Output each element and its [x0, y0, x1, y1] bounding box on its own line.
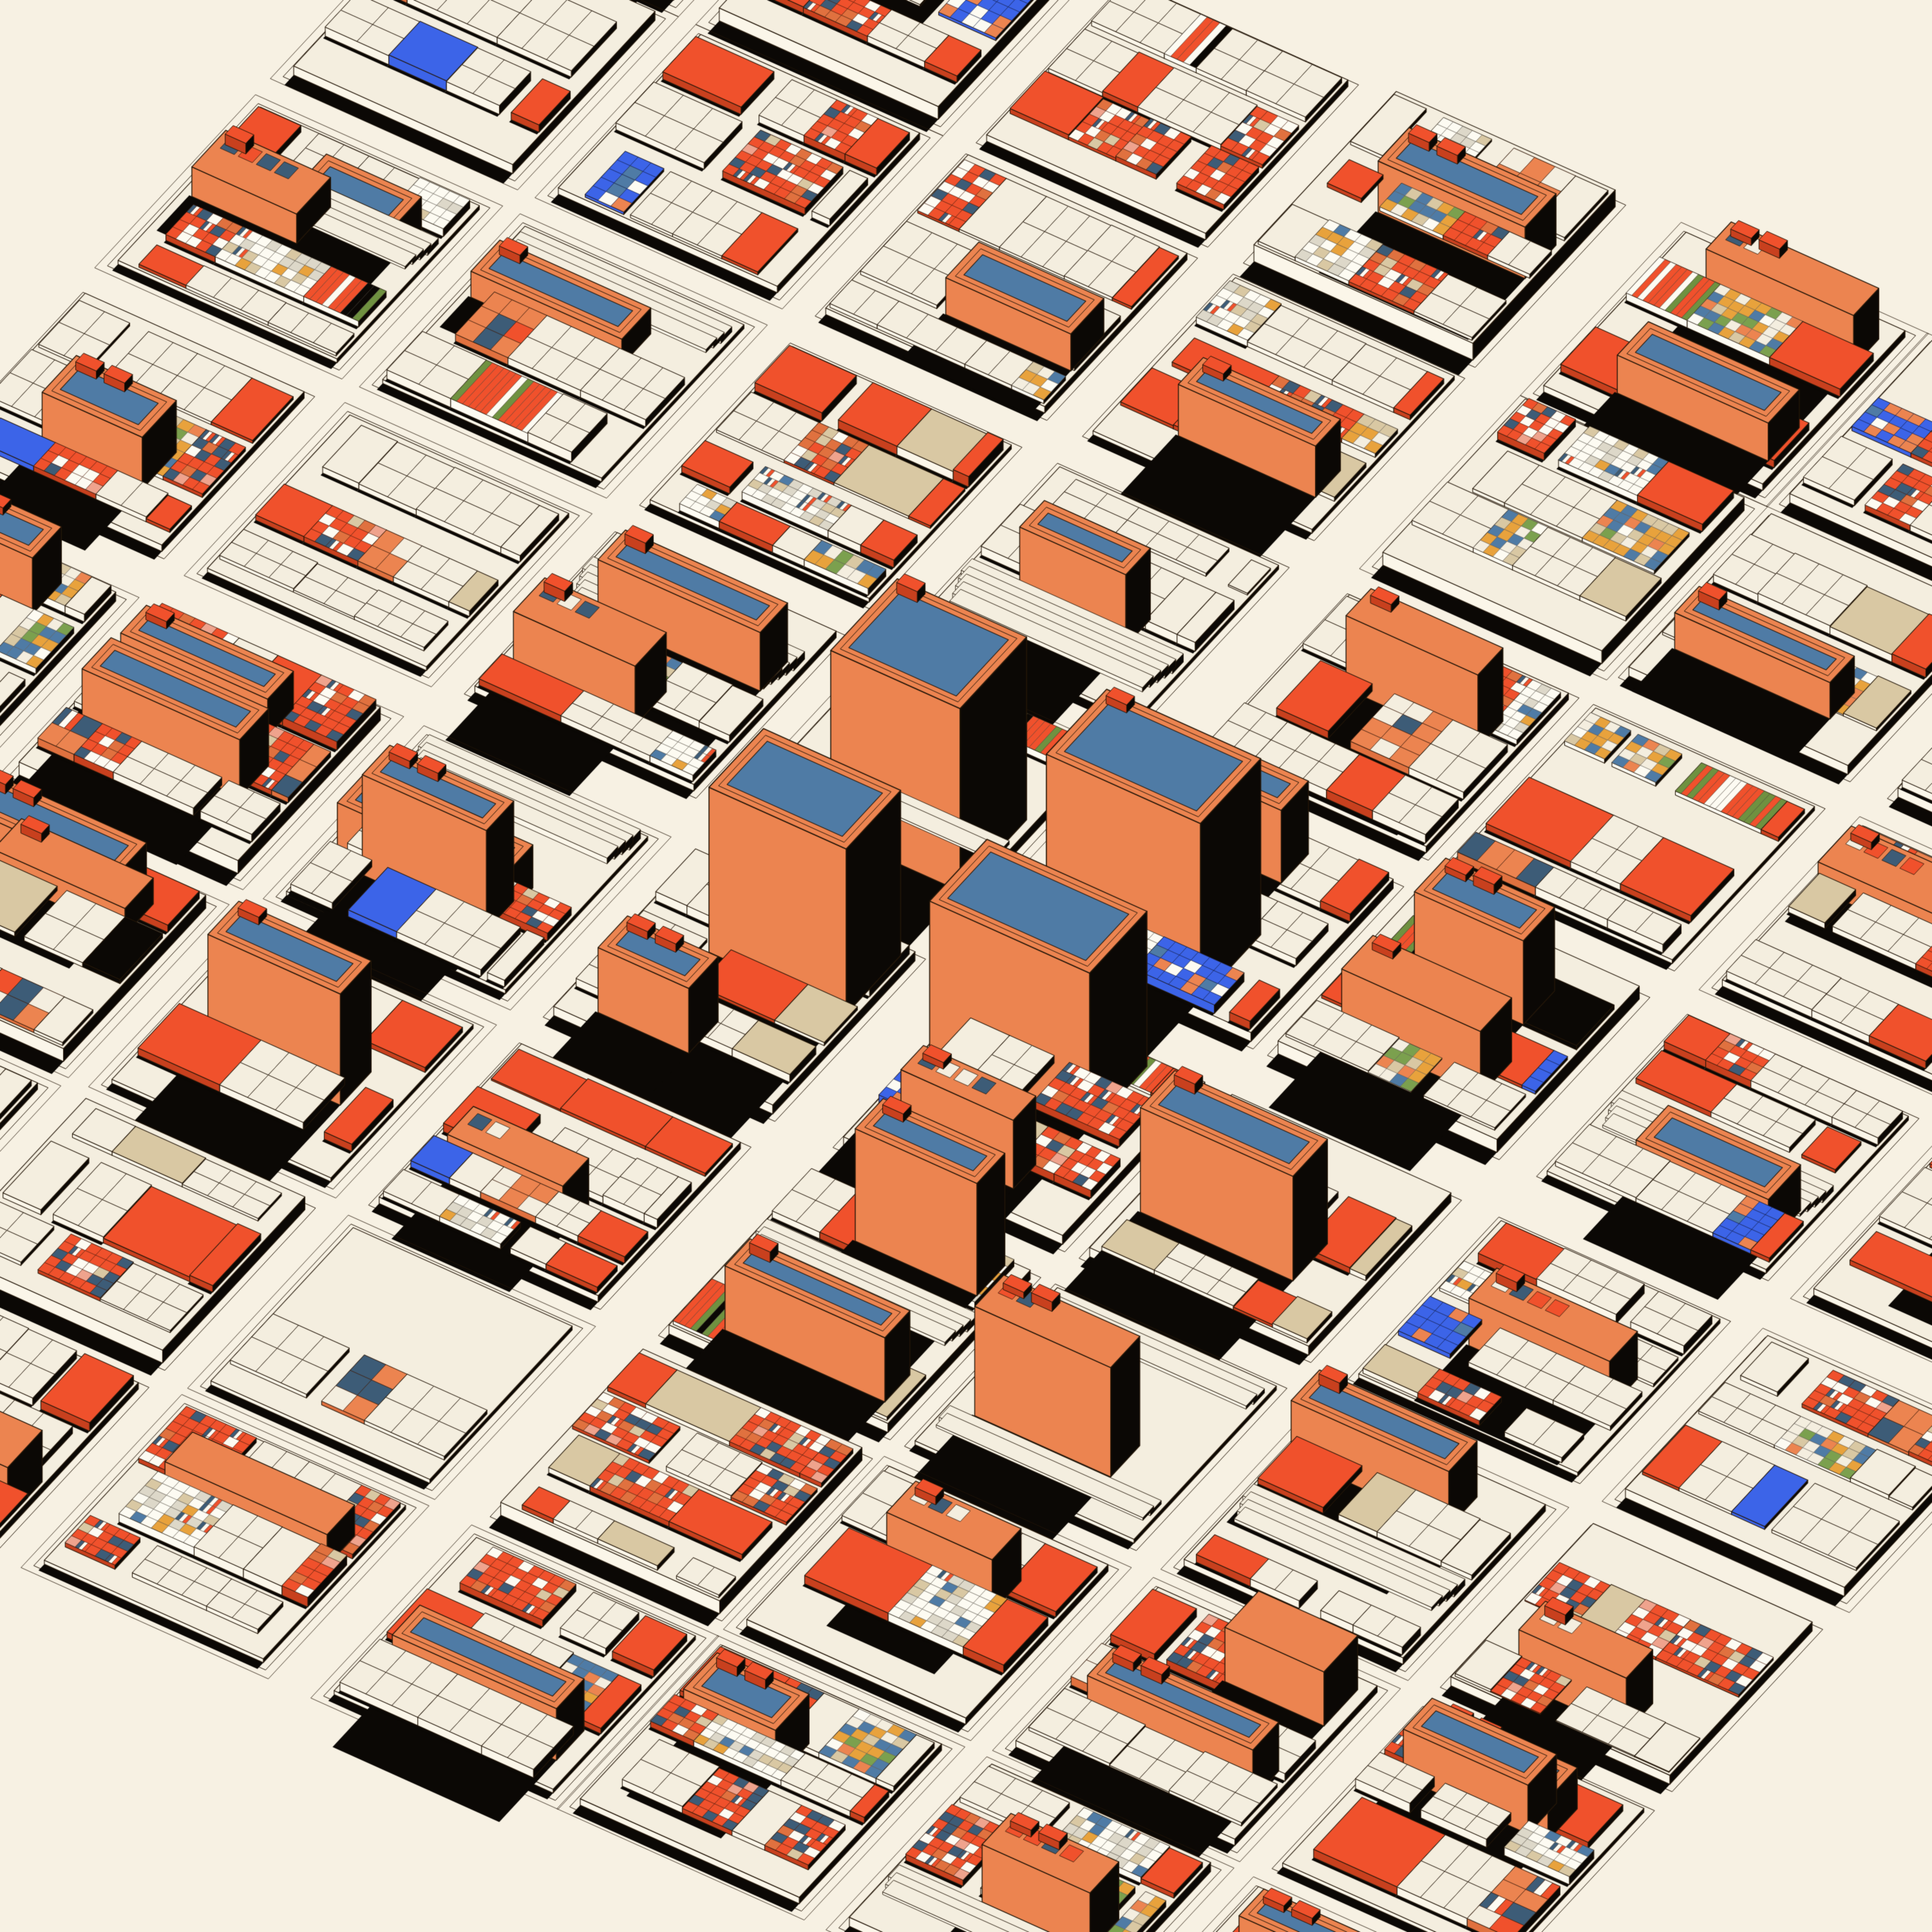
- artwork: [0, 0, 1932, 1932]
- generative-artwork-canvas: [0, 0, 1932, 1932]
